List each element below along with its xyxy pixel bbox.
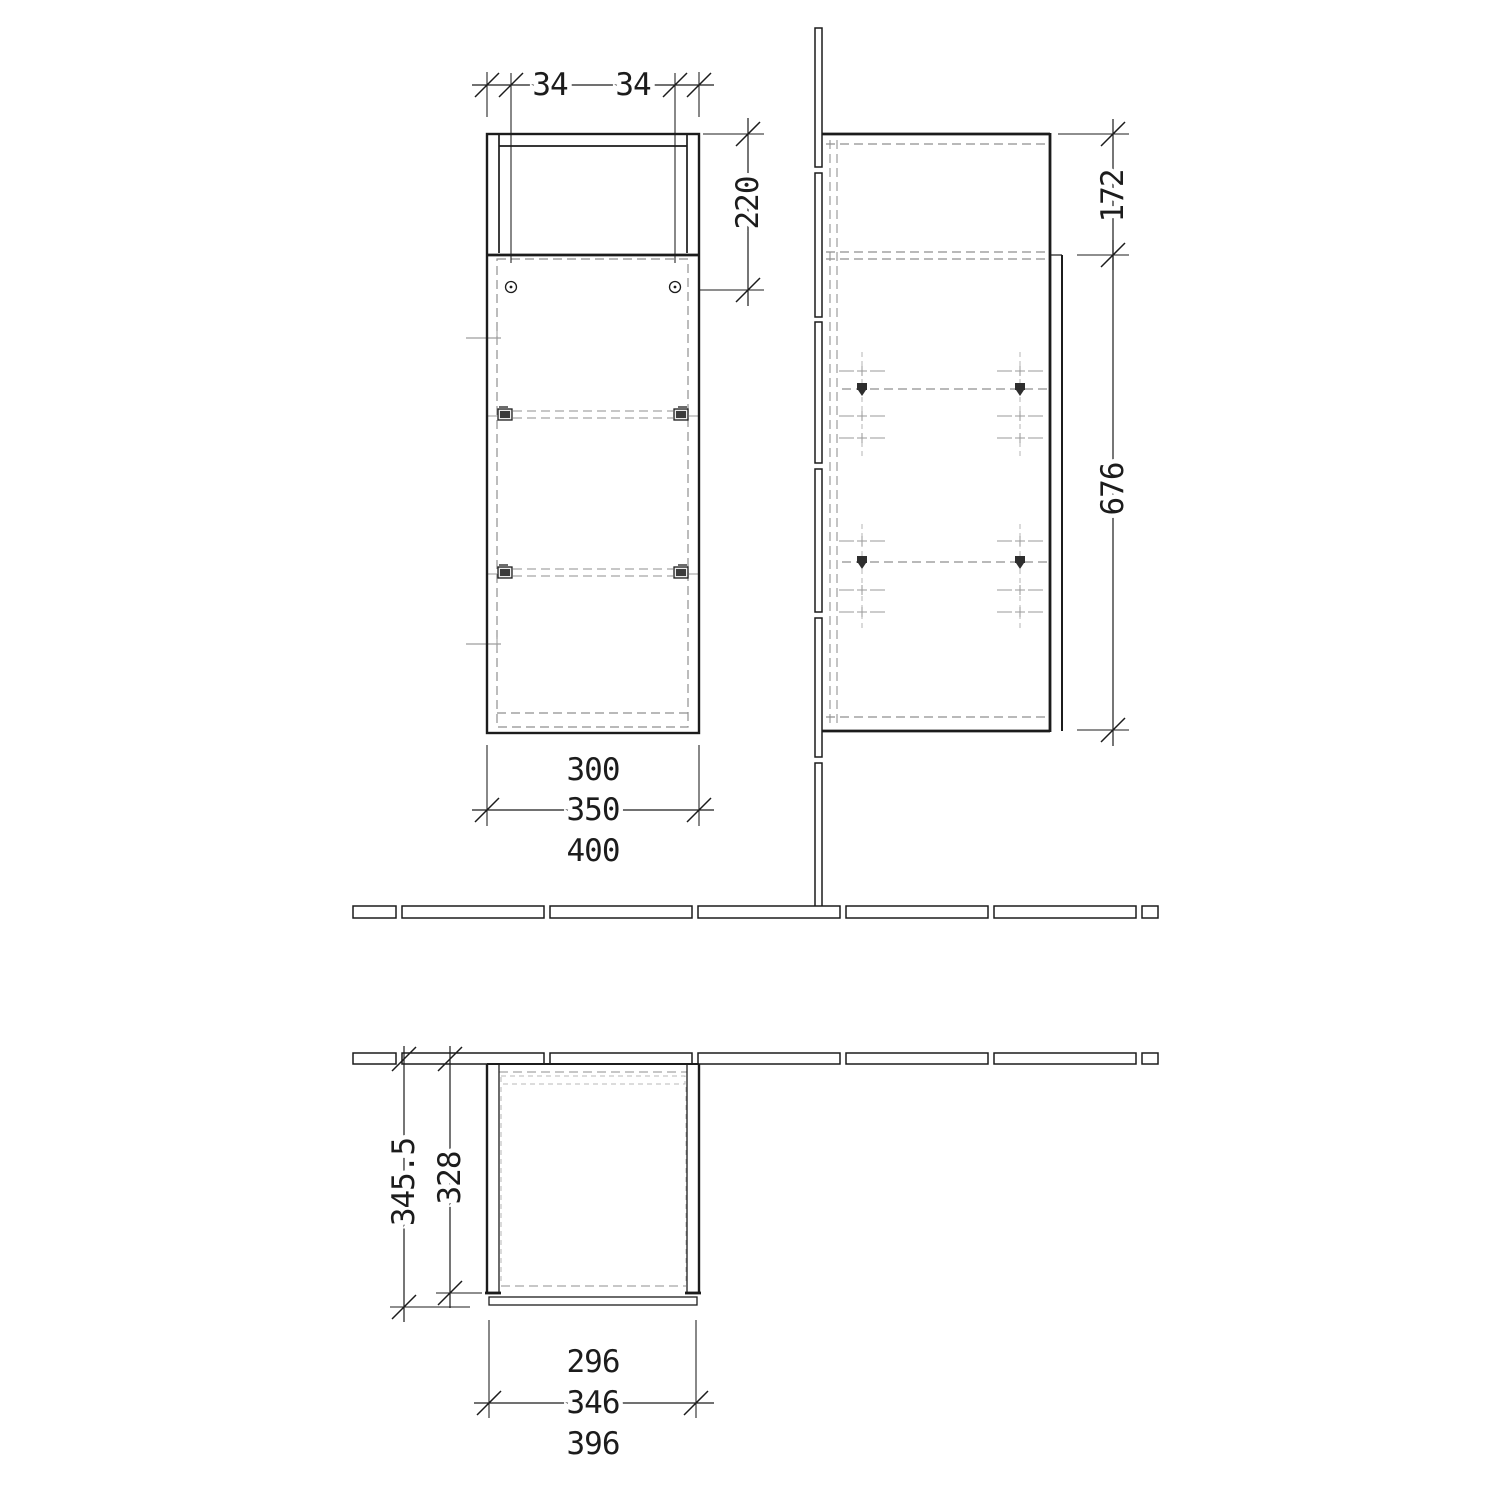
dim-label-door-width-body: 346 (567, 1385, 620, 1421)
dim-label-width-outer: 400 (567, 833, 620, 869)
dim-label-door-width-outer: 396 (567, 1426, 620, 1462)
mounting-holes (506, 282, 681, 293)
dim-label-door-width-inner: 296 (567, 1344, 620, 1380)
open-shelf-frame (499, 134, 687, 253)
shelf-support-right (674, 565, 700, 578)
back-panel-dashed (501, 1076, 685, 1084)
shelf-lower (486, 565, 700, 578)
plan-view (485, 1064, 701, 1305)
side-view (815, 28, 1062, 907)
shelf-support-left (486, 565, 512, 578)
wall-line-upper (353, 906, 1158, 918)
dim-label-upper-height: 172 (1095, 170, 1131, 223)
dim-label-body-height: 676 (1095, 463, 1131, 516)
shelf-pin (857, 383, 867, 396)
dim-label-hole-offset-left: 34 (532, 67, 568, 103)
technical-drawing-page: 34 34 220 300 350 400 (0, 0, 1500, 1500)
cabinet-body-outline (487, 134, 699, 733)
front-view-dimensions: 34 34 220 300 350 400 (472, 67, 766, 869)
plan-door-front (489, 1297, 697, 1305)
dim-label-depth-overall: 345.5 (386, 1138, 422, 1226)
shelf-hole-pattern-upper (839, 352, 1043, 456)
wall-line-lower (353, 1053, 1158, 1064)
hinge-marks (466, 331, 501, 651)
front-view (466, 134, 700, 733)
door-outline-dashed (497, 259, 688, 727)
shelf-support-right (674, 407, 700, 420)
shelf-hole-pattern-lower (839, 524, 1043, 629)
dim-label-hole-offset-right: 34 (615, 67, 651, 103)
side-view-dimensions: 172 676 (1058, 119, 1131, 746)
dim-label-depth-body: 328 (432, 1152, 468, 1205)
plan-view-dimensions: 345.5 328 296 346 396 (386, 1046, 714, 1462)
shelf-support-left (486, 407, 512, 420)
shelf-upper (486, 407, 700, 420)
shelf-pin (857, 556, 867, 569)
dim-label-top-section-height: 220 (730, 177, 766, 230)
drawing-canvas: 34 34 220 300 350 400 (0, 0, 1500, 1500)
shelf-pin (1015, 556, 1025, 569)
wall-line-vertical (815, 28, 822, 907)
dim-label-width-body: 350 (567, 792, 620, 828)
shelf-pin (1015, 383, 1025, 396)
dim-label-width-inner: 300 (567, 752, 620, 788)
